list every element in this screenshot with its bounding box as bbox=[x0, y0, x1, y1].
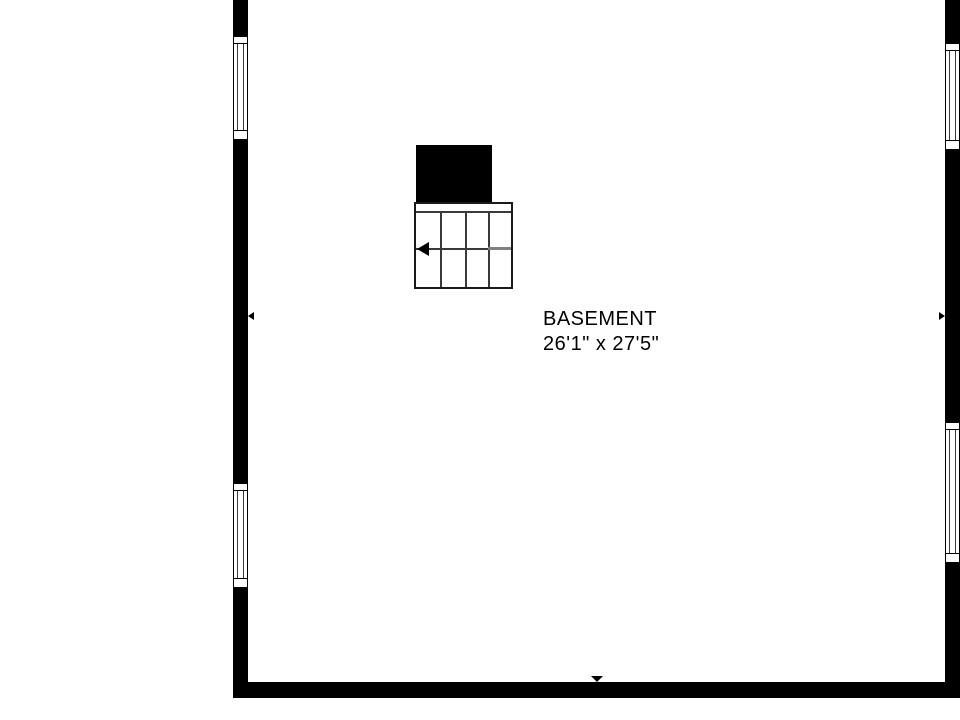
room-name: BASEMENT bbox=[543, 307, 659, 332]
wall-bottom bbox=[233, 682, 960, 698]
window-pane bbox=[237, 44, 244, 130]
wall-arrow-left-icon bbox=[248, 312, 254, 320]
stair-landing bbox=[416, 145, 492, 202]
stair-tread-line bbox=[416, 211, 511, 213]
wall-arrow-right-icon bbox=[939, 312, 945, 320]
stair-tread-line bbox=[440, 213, 442, 287]
window-right-top bbox=[945, 43, 960, 150]
floor-plan-page: { "floor_plan": { "room": { "name": "BAS… bbox=[0, 0, 960, 720]
window-pane bbox=[237, 491, 244, 578]
wall-arrow-down-icon bbox=[591, 676, 603, 682]
window-left-bottom bbox=[233, 483, 248, 588]
window-frame-line-bottom bbox=[946, 553, 959, 554]
window-pane bbox=[949, 430, 956, 553]
stair-direction-arrow-icon bbox=[417, 242, 429, 256]
window-frame-line-bottom bbox=[234, 578, 247, 579]
room-label: BASEMENT 26'1" x 27'5" bbox=[543, 307, 659, 357]
window-left-top bbox=[233, 36, 248, 140]
room-dimensions: 26'1" x 27'5" bbox=[543, 332, 659, 357]
stair-tread-line bbox=[488, 213, 490, 287]
stair-tread-line bbox=[465, 213, 467, 287]
staircase bbox=[414, 202, 513, 289]
window-right-bottom bbox=[945, 422, 960, 563]
window-pane bbox=[949, 51, 956, 140]
window-frame-line-bottom bbox=[946, 140, 959, 141]
stair-rail-segment bbox=[488, 247, 511, 250]
window-frame-line-bottom bbox=[234, 130, 247, 131]
